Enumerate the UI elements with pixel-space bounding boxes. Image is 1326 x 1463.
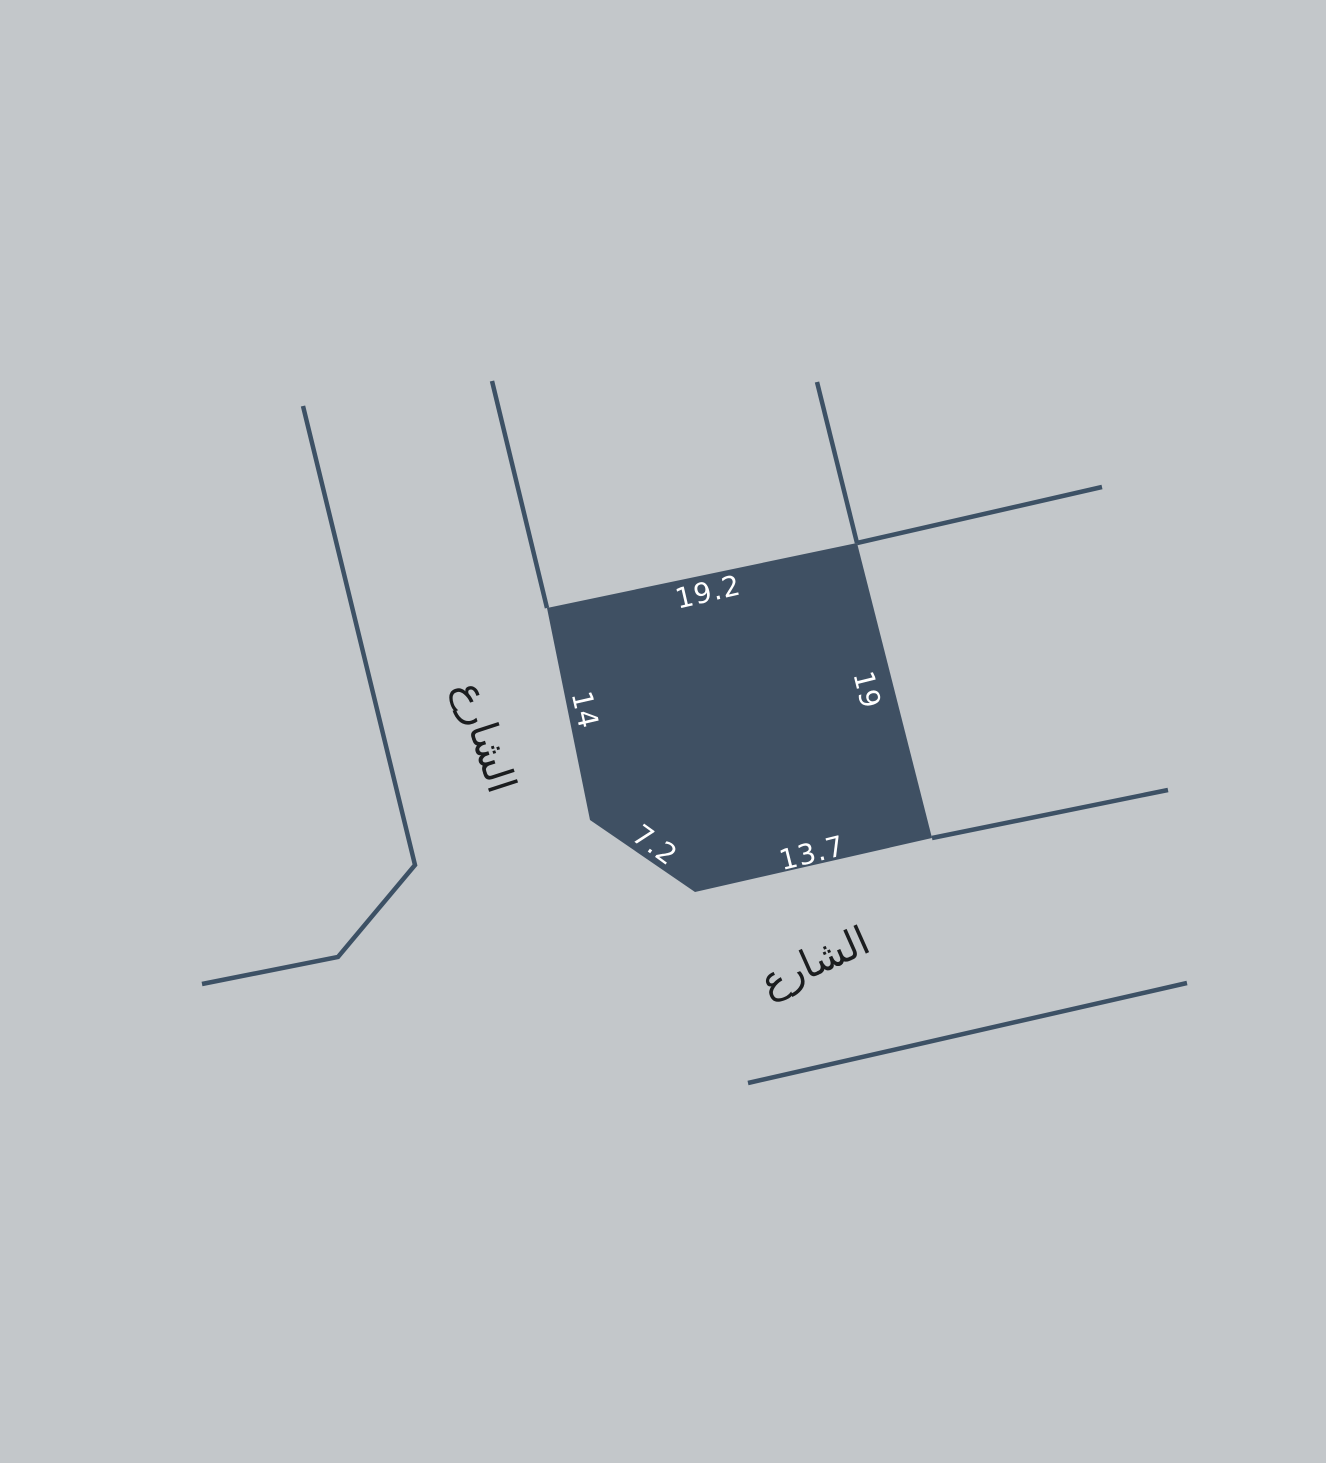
parcel-map-svg: 19.2 19 14 7.2 13.7 الشارع الشارع: [0, 0, 1326, 1463]
parcel-map-canvas: 19.2 19 14 7.2 13.7 الشارع الشارع: [0, 0, 1326, 1463]
